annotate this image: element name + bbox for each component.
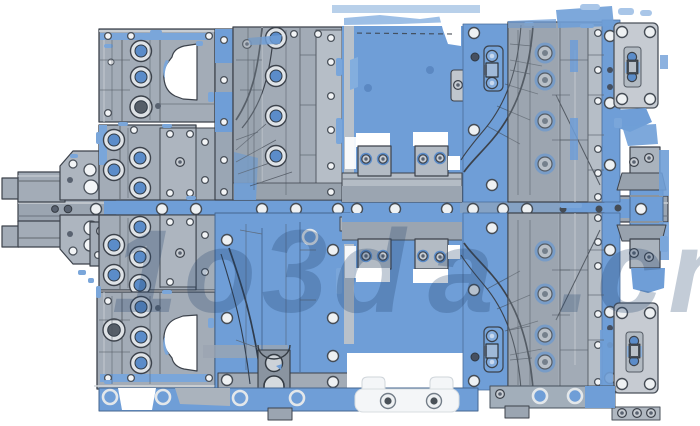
svg-text:1o3d: 1o3d — [112, 206, 411, 338]
svg-text:.cn: .cn — [558, 206, 700, 338]
svg-text:a: a — [428, 206, 494, 338]
